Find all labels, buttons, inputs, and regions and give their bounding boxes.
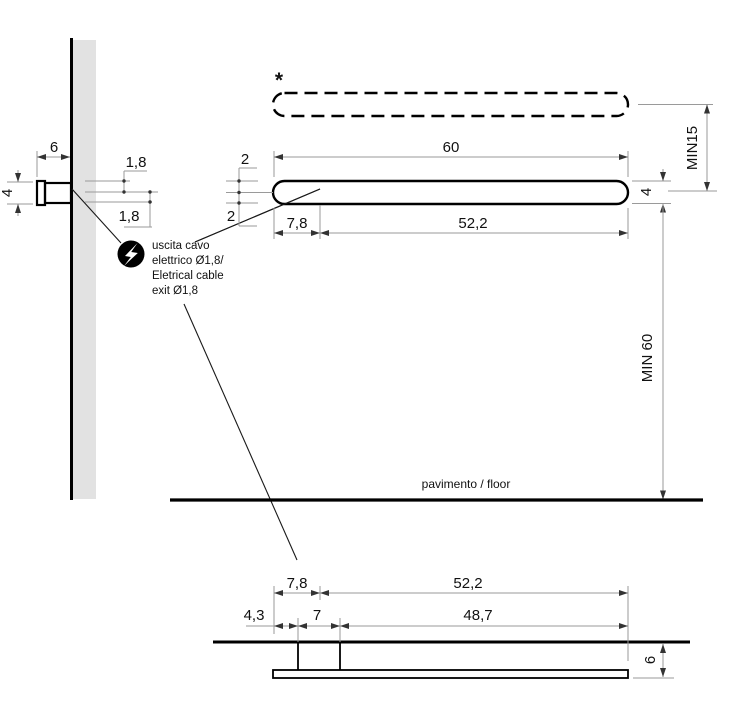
front-lower-half-label: 2 [227,208,235,225]
cable-upper-label: 1,8 [126,154,147,171]
dim-min-floor: MIN 60 [639,204,663,500]
dim-cable-lower: 1,8 [119,190,152,227]
front-view: * 60 7,8 52,2 [170,69,717,500]
front-width-label: 60 [443,139,460,156]
fixture-front-body [273,181,628,204]
bottom-edge-label: 4,3 [244,607,265,624]
front-upper-half-label: 2 [241,151,249,168]
note-line-2: elettrico Ø1,8/ [152,255,224,267]
dim-min-top: MIN15 [638,105,717,192]
bottom-thickness-label: 6 [642,656,659,664]
fixture-bottom-profile [273,670,628,678]
technical-drawing: 6 4 1,8 1,8 [0,0,735,707]
fixture-side-cap [37,181,45,205]
dim-bottom-row2: 4,3 7 48,7 [244,607,628,642]
note-line-3: Eletrical cable [152,270,224,282]
bottom-cable-offset-label: 7,8 [287,575,308,592]
front-cable-offset-label: 7,8 [287,215,308,232]
fixture-side-body [45,183,71,203]
dim-front-halves: 2 2 [226,151,273,226]
optional-position-asterisk: * [275,69,284,92]
cable-note: uscita cavo elettrico Ø1,8/ Eletrical ca… [72,189,320,560]
dim-front-width: 60 [274,139,628,177]
note-line-1: uscita cavo [152,240,210,252]
dim-cable-upper: 1,8 [122,154,147,194]
bottom-rest-label: 48,7 [463,607,492,624]
note-line-4: exit Ø1,8 [152,285,198,297]
optional-position-outline [273,93,628,116]
electricity-icon [118,241,145,268]
dim-side-height: 4 [0,170,33,216]
min-floor-label: MIN 60 [639,334,656,382]
side-view: 6 4 1,8 1,8 [0,38,158,500]
side-height-label: 4 [0,189,16,197]
bottom-body-width-label: 52,2 [453,575,482,592]
dim-bottom-row1: 7,8 52,2 [274,575,628,661]
dim-side-depth: 6 [37,139,70,177]
leader-to-bottom-view [184,304,297,560]
wall-hatch [73,40,96,499]
bottom-bracket-label: 7 [313,607,321,624]
side-depth-label: 6 [50,139,58,156]
front-body-width-label: 52,2 [458,215,487,232]
floor-label: pavimento / floor [422,477,511,491]
front-height-label: 4 [638,188,655,196]
cable-lower-label: 1,8 [119,208,140,225]
dim-front-height: 4 [632,169,671,215]
min-top-label: MIN15 [684,126,701,170]
bottom-view: 7,8 52,2 4,3 7 48,7 6 [213,575,690,678]
dim-bottom-thickness: 6 [633,644,674,678]
dim-front-split: 7,8 52,2 [274,205,628,239]
